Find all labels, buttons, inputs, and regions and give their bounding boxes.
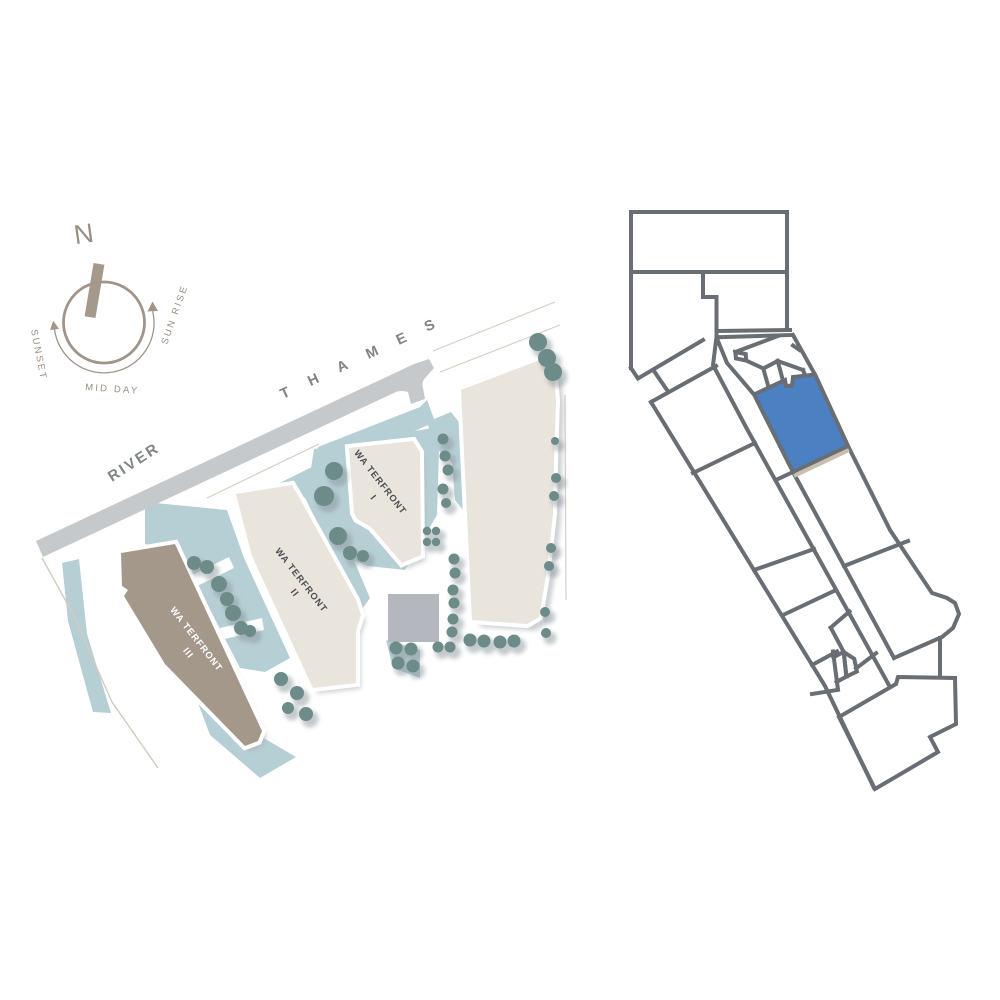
svg-text:MID DAY: MID DAY <box>85 382 140 397</box>
svg-text:SUNSET: SUNSET <box>28 328 49 381</box>
svg-text:RIVER: RIVER <box>105 439 163 485</box>
svg-text:SUN RISE: SUN RISE <box>159 283 190 346</box>
svg-text:N: N <box>72 218 95 250</box>
